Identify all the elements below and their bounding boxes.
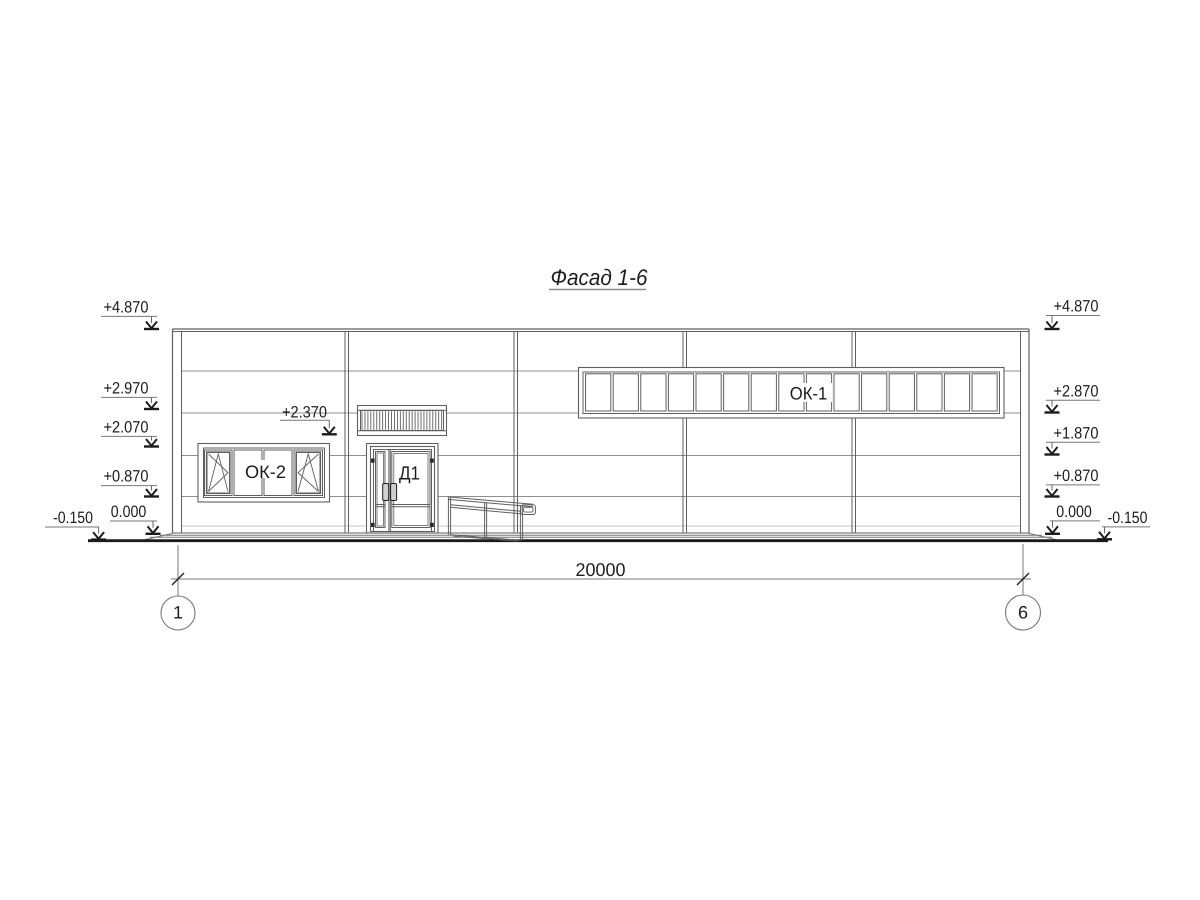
svg-text:0.000: 0.000: [111, 503, 147, 521]
svg-text:+1.870: +1.870: [1054, 424, 1099, 442]
svg-text:+2.370: +2.370: [282, 403, 327, 421]
svg-text:1: 1: [173, 603, 183, 623]
svg-text:20000: 20000: [576, 559, 626, 580]
svg-text:+4.870: +4.870: [1054, 298, 1099, 316]
svg-text:6: 6: [1018, 603, 1028, 623]
svg-text:+0.870: +0.870: [1054, 467, 1099, 485]
svg-text:ОК-2: ОК-2: [245, 462, 286, 482]
svg-text:+2.970: +2.970: [104, 379, 149, 397]
svg-text:-0.150: -0.150: [53, 509, 93, 527]
svg-text:0.000: 0.000: [1056, 503, 1092, 521]
svg-text:+2.870: +2.870: [1054, 382, 1099, 400]
svg-text:+4.870: +4.870: [104, 298, 149, 316]
svg-text:+0.870: +0.870: [104, 468, 149, 486]
svg-text:+2.070: +2.070: [104, 418, 149, 436]
svg-text:Д1: Д1: [399, 464, 420, 485]
svg-text:-0.150: -0.150: [1108, 509, 1148, 527]
svg-text:Фасад 1-6: Фасад 1-6: [551, 265, 648, 290]
svg-text:ОК-1: ОК-1: [790, 384, 828, 404]
